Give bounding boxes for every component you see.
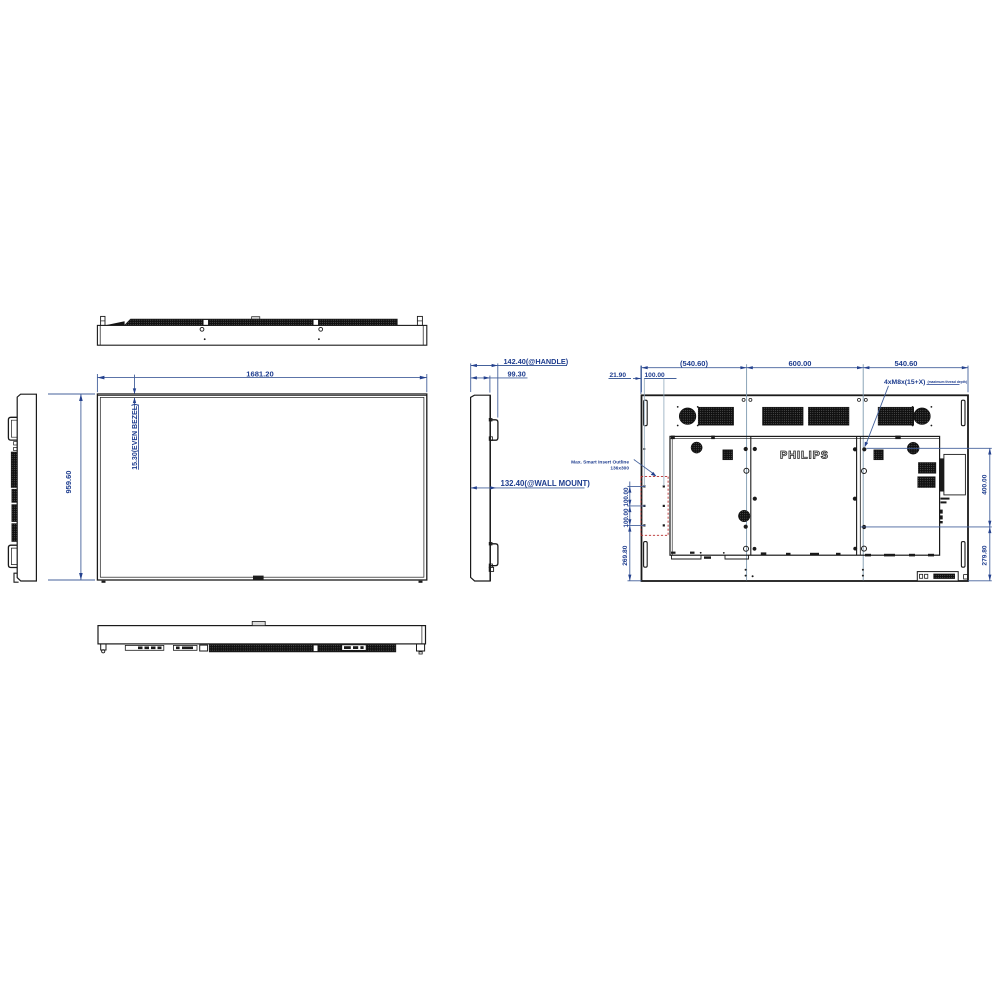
svg-text:142.40(@HANDLE): 142.40(@HANDLE) xyxy=(504,357,569,366)
svg-text:(540.60): (540.60) xyxy=(680,359,708,368)
svg-text:100.00: 100.00 xyxy=(623,487,630,506)
svg-text:959.60: 959.60 xyxy=(64,471,73,494)
svg-text:Max. Smart Insert Outline: Max. Smart Insert Outline xyxy=(571,460,629,466)
svg-text:600.00: 600.00 xyxy=(789,359,812,368)
svg-text:100.00: 100.00 xyxy=(645,372,666,379)
svg-text:(maximum thread depth): (maximum thread depth) xyxy=(928,380,968,384)
svg-text:21.90: 21.90 xyxy=(610,372,627,379)
svg-text:400.00: 400.00 xyxy=(982,474,989,495)
svg-text:15.30(EVEN BEZEL): 15.30(EVEN BEZEL) xyxy=(132,404,139,470)
svg-text:136x300: 136x300 xyxy=(610,466,629,472)
svg-text:1681.20: 1681.20 xyxy=(246,369,273,378)
svg-text:540.60: 540.60 xyxy=(895,359,918,368)
svg-text:99.30: 99.30 xyxy=(508,369,526,378)
svg-text:PHILIPS: PHILIPS xyxy=(780,450,829,462)
svg-text:4xM8x(15+X): 4xM8x(15+X) xyxy=(884,379,925,386)
svg-text:100.00: 100.00 xyxy=(623,508,630,527)
svg-text:279.80: 279.80 xyxy=(982,545,989,566)
svg-text:269.80: 269.80 xyxy=(622,545,629,566)
svg-text:132.40(@WALL MOUNT): 132.40(@WALL MOUNT) xyxy=(501,479,591,488)
